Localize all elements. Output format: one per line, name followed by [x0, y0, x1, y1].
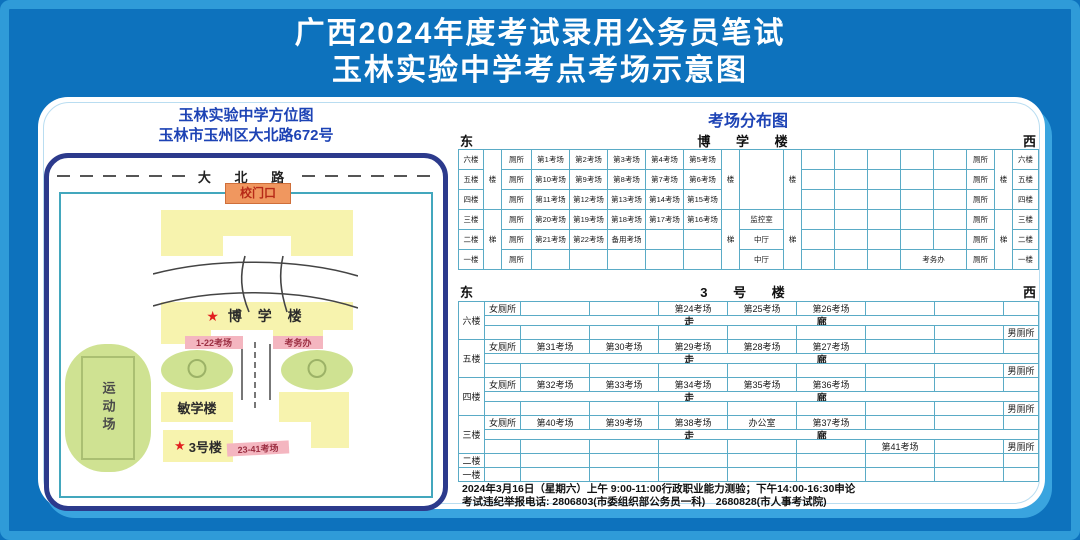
room-cell: 第17考场: [646, 210, 684, 230]
empty-room-cell: [728, 440, 797, 454]
room-cell: 第29考场: [659, 340, 728, 354]
inner-road-line: [241, 344, 243, 400]
south-row: 男厕所: [459, 326, 1039, 340]
room-cell: 第30考场: [590, 340, 659, 354]
toilet-cell: 厕所: [967, 250, 995, 270]
room-cell: 男厕所: [1004, 402, 1039, 416]
empty-room-cell: [797, 454, 866, 468]
empty-room-cell: [659, 440, 728, 454]
room-cell: 第33考场: [590, 378, 659, 392]
toilet-cell: 厕所: [967, 230, 995, 250]
corridor-right-char: 廊: [817, 392, 827, 402]
boxue-name-text: 博 学 楼: [228, 306, 308, 326]
empty-room-cell: [802, 170, 835, 190]
room-cell: 第22考场: [570, 230, 608, 250]
empty-room-cell: [728, 326, 797, 340]
empty-room-cell: [835, 170, 868, 190]
corridor-cell: 走廊: [485, 392, 1039, 402]
inner-road-centerline: [254, 342, 256, 408]
room-cell: 第1考场: [532, 150, 570, 170]
floor-label: 二楼: [1013, 230, 1039, 250]
room-cell: 备用考场: [608, 230, 646, 250]
corridor-left-char: 走: [684, 430, 694, 440]
tree-core-icon: [308, 359, 327, 378]
empty-room-cell: [935, 364, 1004, 378]
corridor-left-char: 走: [684, 316, 694, 326]
room-cell: 第9考场: [570, 170, 608, 190]
floor-label: 一楼: [459, 468, 485, 482]
empty-room-cell: [646, 250, 684, 270]
footer-notes: 2024年3月16日（星期六）上午 9:00-11:00行政职业能力测验；下午1…: [462, 483, 1038, 509]
no3-table: 六楼女厕所第24考场第25考场第26考场走廊男厕所五楼女厕所第31考场第30考场…: [458, 301, 1039, 482]
empty-room-cell: [868, 250, 901, 270]
empty-room-cell: [802, 210, 835, 230]
sports-field: 运动场: [65, 344, 151, 472]
boxue-rooms-label: 1-22考场: [185, 336, 243, 349]
stair-cell: 楼: [484, 150, 502, 210]
empty-room-cell: [728, 402, 797, 416]
room-cell: 第39考场: [590, 416, 659, 430]
empty-room-cell: [485, 454, 521, 468]
stair-cell: 楼: [722, 150, 740, 210]
boxue-name: ★ 博 学 楼: [161, 302, 353, 330]
corridor-row: 走廊: [459, 354, 1039, 364]
empty-room-cell: [590, 326, 659, 340]
room-cell: 男厕所: [1004, 326, 1039, 340]
boxue-star-icon: ★: [206, 308, 225, 325]
floor-label: 三楼: [459, 416, 485, 454]
room-cell: 第5考场: [684, 150, 722, 170]
empty-room-cell: [590, 302, 659, 316]
empty-room-cell: [866, 340, 935, 354]
empty-room-cell: [590, 402, 659, 416]
floor-label: 二楼: [459, 230, 484, 250]
no3-name-text: 3号楼: [189, 437, 222, 456]
empty-room-cell: [802, 250, 835, 270]
hall-cell: 监控室: [740, 210, 784, 230]
room-cell: 第31考场: [521, 340, 590, 354]
empty-room-cell: [934, 190, 967, 210]
empty-room-cell: [866, 302, 935, 316]
floor-row: 二楼: [459, 454, 1039, 468]
empty-room-cell: [1004, 378, 1039, 392]
floor-label: 三楼: [459, 210, 484, 230]
room-cell: 第41考场: [866, 440, 935, 454]
toilet-cell: 厕所: [502, 190, 532, 210]
room-cell: 第4考场: [646, 150, 684, 170]
floor-row: 三楼梯厕所第20考场第19考场第18考场第17考场第16考场梯监控室梯厕所梯三楼: [459, 210, 1039, 230]
south-row: 男厕所: [459, 364, 1039, 378]
room-cell: 第14考场: [646, 190, 684, 210]
room-cell: 第21考场: [532, 230, 570, 250]
stair-cell: 梯: [722, 210, 740, 270]
room-cell: 第37考场: [797, 416, 866, 430]
empty-room-cell: [934, 230, 967, 250]
empty-room-cell: [659, 402, 728, 416]
exam-schedule: 2024年3月16日（星期六）上午 9:00-11:00行政职业能力测验；下午1…: [462, 483, 1038, 496]
tree-core-icon: [188, 359, 207, 378]
corridor-left-char: 走: [684, 354, 694, 364]
floor-row: 六楼女厕所第24考场第25考场第26考场: [459, 302, 1039, 316]
empty-room-cell: [835, 210, 868, 230]
room-cell: 男厕所: [1004, 440, 1039, 454]
empty-room-cell: [521, 326, 590, 340]
empty-room-cell: [901, 230, 934, 250]
hall-cell: 中厅: [740, 250, 784, 270]
room-cell: 第20考场: [532, 210, 570, 230]
empty-room-cell: [901, 210, 934, 230]
empty-room-cell: [797, 402, 866, 416]
empty-room-cell: [901, 150, 934, 170]
empty-room-cell: [934, 210, 967, 230]
room-cell: 男厕所: [1004, 364, 1039, 378]
empty-room-cell: [684, 250, 722, 270]
empty-room-cell: [485, 364, 521, 378]
empty-room-cell: [570, 250, 608, 270]
corridor-left-char: 走: [684, 392, 694, 402]
floor-row: 五楼女厕所第31考场第30考场第29考场第28考场第27考场: [459, 340, 1039, 354]
empty-room-cell: [935, 440, 1004, 454]
floor-label: 六楼: [459, 302, 485, 340]
l-building-bottom: [311, 422, 349, 448]
exam-office-cell: 考务办: [901, 250, 967, 270]
empty-room-cell: [935, 302, 1004, 316]
main-title-line2: 玉林实验中学考点考场示意图: [0, 52, 1080, 89]
corridor-row: 走廊: [459, 392, 1039, 402]
stair-cell: 楼: [995, 150, 1013, 210]
stair-cell: 楼: [784, 150, 802, 210]
toilet-cell: 厕所: [967, 170, 995, 190]
sports-field-label: 运动场: [99, 381, 118, 435]
south-row: 第41考场男厕所: [459, 440, 1039, 454]
empty-room-cell: [659, 364, 728, 378]
room-cell: 第16考场: [684, 210, 722, 230]
empty-room-cell: [935, 468, 1004, 482]
boxue-building-label: 博 学 楼: [458, 131, 1038, 150]
front-building-left-wing: [161, 236, 223, 256]
room-cell: 第27考场: [797, 340, 866, 354]
empty-room-cell: [866, 326, 935, 340]
toilet-cell: 厕所: [502, 170, 532, 190]
empty-room-cell: [866, 402, 935, 416]
empty-room-cell: [835, 250, 868, 270]
toilet-cell: 厕所: [502, 150, 532, 170]
empty-room-cell: [797, 440, 866, 454]
floor-label: 一楼: [1013, 250, 1039, 270]
floor-row: 二楼厕所第21考场第22考场备用考场中厅厕所二楼: [459, 230, 1039, 250]
empty-room-cell: [659, 468, 728, 482]
room-cell: 第6考场: [684, 170, 722, 190]
road-dash-left: [57, 175, 190, 177]
no3-header: 东 3 号 楼 西: [458, 282, 1038, 298]
empty-room-cell: [935, 326, 1004, 340]
l-building-top: [279, 392, 349, 422]
empty-room-cell: [521, 364, 590, 378]
room-cell: 第13考场: [608, 190, 646, 210]
empty-room-cell: [590, 364, 659, 378]
floor-label: 三楼: [1013, 210, 1039, 230]
empty-room-cell: [868, 230, 901, 250]
poster: 广西2024年度考试录用公务员笔试 玉林实验中学考点考场示意图 玉林实验中学方位…: [0, 0, 1080, 540]
empty-room-cell: [608, 250, 646, 270]
exam-office-label: 考务办: [273, 336, 323, 349]
empty-room-cell: [866, 364, 935, 378]
floor-label: 六楼: [459, 150, 484, 170]
room-cell: 第3考场: [608, 150, 646, 170]
room-cell: 第32考场: [521, 378, 590, 392]
corridor-right-char: 廊: [817, 354, 827, 364]
empty-room-cell: [868, 170, 901, 190]
tree-icon: [161, 350, 233, 390]
floor-label: 二楼: [459, 454, 485, 468]
floor-label: 五楼: [459, 340, 485, 378]
empty-room-cell: [521, 302, 590, 316]
corridor-right-char: 廊: [817, 430, 827, 440]
empty-room-cell: [1004, 468, 1039, 482]
empty-room-cell: [485, 326, 521, 340]
no3-name: ★ 3号楼: [163, 430, 233, 462]
room-cell: 第18考场: [608, 210, 646, 230]
empty-room-cell: [934, 170, 967, 190]
room-cell: 第19考场: [570, 210, 608, 230]
empty-room-cell: [1004, 302, 1039, 316]
campus-map: 大 北 路 校门口 ★ 博 学 楼 1: [44, 153, 448, 511]
empty-room-cell: [532, 250, 570, 270]
empty-room-cell: [521, 454, 590, 468]
empty-room-cell: [901, 170, 934, 190]
sports-field-track: 运动场: [81, 356, 135, 460]
floor-label: 五楼: [459, 170, 484, 190]
room-cell: 第26考场: [797, 302, 866, 316]
front-building: [161, 210, 353, 236]
toilet-cell: 厕所: [502, 250, 532, 270]
room-cell: 第11考场: [532, 190, 570, 210]
empty-room-cell: [728, 364, 797, 378]
empty-room-cell: [802, 190, 835, 210]
room-cell: 第28考场: [728, 340, 797, 354]
empty-room-cell: [866, 454, 935, 468]
hall-cell: [740, 150, 784, 210]
room-cell: 女厕所: [485, 302, 521, 316]
empty-room-cell: [659, 454, 728, 468]
empty-room-cell: [934, 150, 967, 170]
room-cell: 第25考场: [728, 302, 797, 316]
empty-room-cell: [485, 468, 521, 482]
empty-room-cell: [728, 454, 797, 468]
empty-room-cell: [935, 340, 1004, 354]
room-cell: 第7考场: [646, 170, 684, 190]
room-cell: 第34考场: [659, 378, 728, 392]
empty-room-cell: [866, 468, 935, 482]
room-cell: 第38考场: [659, 416, 728, 430]
map-address: 玉林市玉州区大北路672号: [44, 126, 448, 146]
room-cell: 第36考场: [797, 378, 866, 392]
map-title: 玉林实验中学方位图: [44, 106, 448, 126]
empty-room-cell: [485, 402, 521, 416]
empty-room-cell: [728, 468, 797, 482]
empty-room-cell: [1004, 416, 1039, 430]
room-cell: 办公室: [728, 416, 797, 430]
empty-room-cell: [901, 190, 934, 210]
main-title-line1: 广西2024年度考试录用公务员笔试: [0, 15, 1080, 52]
floor-label: 六楼: [1013, 150, 1039, 170]
floor-label: 四楼: [459, 190, 484, 210]
empty-room-cell: [1004, 340, 1039, 354]
school-gate-label: 校门口: [225, 183, 291, 204]
empty-room-cell: [590, 454, 659, 468]
floor-label: 一楼: [459, 250, 484, 270]
empty-room-cell: [646, 230, 684, 250]
minxue-name: 敏学楼: [161, 392, 233, 422]
stair-cell: 梯: [484, 210, 502, 270]
west-label: 西: [1023, 282, 1036, 301]
empty-room-cell: [797, 364, 866, 378]
corridor-cell: 走廊: [485, 316, 1039, 326]
road-dash-right: [302, 175, 435, 177]
room-cell: 第35考场: [728, 378, 797, 392]
floor-row: 四楼女厕所第32考场第33考场第34考场第35考场第36考场: [459, 378, 1039, 392]
toilet-cell: 厕所: [967, 210, 995, 230]
empty-room-cell: [590, 440, 659, 454]
empty-room-cell: [521, 468, 590, 482]
report-hotline: 考试违纪举报电话: 2806803(市委组织部公务员一科) 2680828(市人…: [462, 496, 1038, 509]
corridor-right-char: 廊: [817, 316, 827, 326]
empty-room-cell: [521, 440, 590, 454]
hall-cell: 中厅: [740, 230, 784, 250]
floor-label: 四楼: [1013, 190, 1039, 210]
corridor-cell: 走廊: [485, 430, 1039, 440]
corridor-cell: 走廊: [485, 354, 1039, 364]
floor-row: 一楼: [459, 468, 1039, 482]
inner-road-line: [269, 344, 271, 400]
floor-label: 四楼: [459, 378, 485, 416]
empty-room-cell: [935, 454, 1004, 468]
empty-room-cell: [868, 190, 901, 210]
floor-row: 一楼厕所中厅考务办厕所一楼: [459, 250, 1039, 270]
distribution-title: 考场分布图: [458, 107, 1038, 131]
empty-room-cell: [835, 190, 868, 210]
stair-cell: 梯: [784, 210, 802, 270]
toilet-cell: 厕所: [967, 150, 995, 170]
empty-room-cell: [1004, 454, 1039, 468]
south-row: 男厕所: [459, 402, 1039, 416]
content-panel: 玉林实验中学方位图 玉林市玉州区大北路672号 大 北 路 校门口: [38, 97, 1045, 509]
empty-room-cell: [835, 230, 868, 250]
room-cell: 第2考场: [570, 150, 608, 170]
room-cell: 女厕所: [485, 416, 521, 430]
floor-row: 三楼女厕所第40考场第39考场第38考场办公室第37考场: [459, 416, 1039, 430]
empty-room-cell: [485, 440, 521, 454]
empty-room-cell: [521, 402, 590, 416]
no3-building-label: 3 号 楼: [458, 282, 1038, 301]
empty-room-cell: [935, 416, 1004, 430]
empty-room-cell: [866, 416, 935, 430]
stair-cell: 梯: [995, 210, 1013, 270]
empty-room-cell: [802, 150, 835, 170]
no3-star-icon: ★: [174, 438, 186, 454]
empty-room-cell: [797, 468, 866, 482]
corridor-row: 走廊: [459, 430, 1039, 440]
room-cell: 第15考场: [684, 190, 722, 210]
room-cell: 第24考场: [659, 302, 728, 316]
room-cell: 女厕所: [485, 340, 521, 354]
empty-room-cell: [866, 378, 935, 392]
boxue-table: 六楼楼厕所第1考场第2考场第3考场第4考场第5考场楼楼厕所楼六楼五楼厕所第10考…: [458, 149, 1039, 270]
empty-room-cell: [868, 210, 901, 230]
empty-room-cell: [935, 402, 1004, 416]
corridor-row: 走廊: [459, 316, 1039, 326]
empty-room-cell: [935, 378, 1004, 392]
boxue-header: 东 博 学 楼 西: [458, 131, 1038, 147]
room-cell: 第12考场: [570, 190, 608, 210]
empty-room-cell: [835, 150, 868, 170]
room-cell: 女厕所: [485, 378, 521, 392]
empty-room-cell: [659, 326, 728, 340]
front-building-right-wing: [291, 236, 353, 256]
floor-label: 五楼: [1013, 170, 1039, 190]
room-cell: 第40考场: [521, 416, 590, 430]
empty-room-cell: [590, 468, 659, 482]
room-cell: 第10考场: [532, 170, 570, 190]
west-label: 西: [1023, 131, 1036, 150]
empty-room-cell: [684, 230, 722, 250]
toilet-cell: 厕所: [502, 230, 532, 250]
room-cell: 第8考场: [608, 170, 646, 190]
main-title: 广西2024年度考试录用公务员笔试 玉林实验中学考点考场示意图: [0, 15, 1080, 89]
toilet-cell: 厕所: [502, 210, 532, 230]
empty-room-cell: [797, 326, 866, 340]
floor-row: 六楼楼厕所第1考场第2考场第3考场第4考场第5考场楼楼厕所楼六楼: [459, 150, 1039, 170]
empty-room-cell: [868, 150, 901, 170]
tree-icon: [281, 350, 353, 390]
empty-room-cell: [802, 230, 835, 250]
toilet-cell: 厕所: [967, 190, 995, 210]
